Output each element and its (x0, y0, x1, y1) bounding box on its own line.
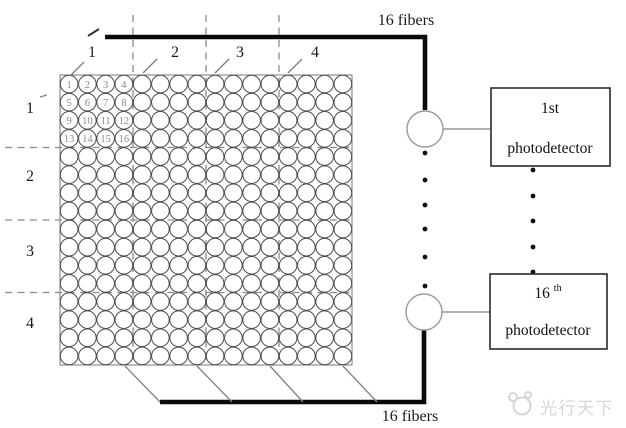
fiber-circle (243, 93, 261, 111)
fiber-circle (60, 184, 78, 202)
fiber-circle (225, 112, 243, 130)
fiber-circle (60, 166, 78, 184)
fiber-circle (225, 93, 243, 111)
fiber-circle (97, 184, 115, 202)
fiber-circle (152, 311, 170, 329)
fiber-circle (316, 293, 334, 311)
fiber-circle (316, 275, 334, 293)
fiber-circle (334, 238, 352, 256)
photodetector-1-ordinal-text: 1st (541, 100, 560, 117)
leader-tick (215, 59, 229, 73)
fiber-circle (188, 130, 206, 148)
fiber-circle (97, 166, 115, 184)
fiber-circle (261, 275, 279, 293)
fiber-circle (243, 257, 261, 275)
ellipsis-dots (423, 151, 536, 289)
fiber-circle (133, 130, 151, 148)
fiber-circle (152, 112, 170, 130)
fiber-circle (261, 220, 279, 238)
fiber-circle (225, 238, 243, 256)
fiber-circle (225, 329, 243, 347)
fiber-number: 13 (64, 134, 75, 145)
fiber-circle (79, 311, 97, 329)
fiber-circle (316, 93, 334, 111)
fiber-circle (243, 329, 261, 347)
fiber-circle (279, 112, 297, 130)
fiber-circle (115, 238, 133, 256)
fiber-circle (298, 130, 316, 148)
fan-out-line (270, 366, 303, 402)
fiber-circle (206, 75, 224, 93)
leader-tick (143, 59, 157, 73)
fiber-circle (170, 184, 188, 202)
fiber-circle (79, 238, 97, 256)
ellipsis-dot (531, 168, 536, 173)
fiber-circle (225, 347, 243, 365)
fiber-circle (170, 347, 188, 365)
fiber-circle (206, 184, 224, 202)
fiber-number: 15 (100, 134, 111, 145)
fiber-circle (188, 293, 206, 311)
fiber-circle (298, 257, 316, 275)
fiber-circle (279, 184, 297, 202)
fiber-circle (206, 293, 224, 311)
fiber-circle (316, 220, 334, 238)
fiber-circle (316, 329, 334, 347)
fiber-circle (243, 130, 261, 148)
fiber-circle (152, 184, 170, 202)
fiber-circle (334, 148, 352, 166)
watermark-logo-icon (509, 392, 531, 415)
top-fibers-label: 16 fibers (378, 12, 434, 29)
fiber-circle (60, 257, 78, 275)
fiber-circle (60, 347, 78, 365)
fiber-number: 16 (119, 134, 130, 145)
fiber-circle (133, 75, 151, 93)
fiber-circle (298, 275, 316, 293)
fiber-circle (225, 293, 243, 311)
fiber-circle (206, 93, 224, 111)
fiber-circle (261, 257, 279, 275)
fiber-circle (79, 184, 97, 202)
fiber-circle (261, 112, 279, 130)
fiber-circle (316, 166, 334, 184)
fiber-circle (152, 220, 170, 238)
fiber-circle (279, 130, 297, 148)
fiber-circle (243, 275, 261, 293)
fiber-circle (79, 257, 97, 275)
fiber-circle (243, 148, 261, 166)
fiber-circle (279, 202, 297, 220)
fiber-circle (298, 184, 316, 202)
fiber-circle (243, 184, 261, 202)
leader-tick (70, 62, 84, 76)
fiber-circle (152, 238, 170, 256)
fiber-circle (225, 184, 243, 202)
fiber-circle (188, 311, 206, 329)
fiber-circle (225, 220, 243, 238)
fiber-circle (133, 148, 151, 166)
fiber-circle (334, 93, 352, 111)
fiber-circle (334, 220, 352, 238)
fiber-circle (115, 202, 133, 220)
fiber-circle (261, 93, 279, 111)
fiber-circle (243, 202, 261, 220)
fiber-circle (188, 112, 206, 130)
fiber-circle (279, 347, 297, 365)
fiber-circle (170, 275, 188, 293)
fiber-circle (188, 329, 206, 347)
fiber-circle (115, 166, 133, 184)
fiber-circle (206, 275, 224, 293)
fiber-circle (152, 347, 170, 365)
fiber-circle (206, 220, 224, 238)
fiber-circle (316, 347, 334, 365)
fiber-circle (188, 75, 206, 93)
fiber-circle (261, 202, 279, 220)
fiber-circle (279, 166, 297, 184)
diagram-canvas: 12345678910111213141516 16 fibers 16 fib… (0, 0, 626, 428)
fiber-circle (316, 148, 334, 166)
ellipsis-dot (531, 219, 536, 224)
fiber-circle (225, 257, 243, 275)
fiber-circle (133, 238, 151, 256)
fiber-circle (298, 148, 316, 166)
fiber-number: 6 (85, 98, 90, 109)
fiber-array-grid: 12345678910111213141516 (5, 15, 352, 365)
fiber-circle (97, 238, 115, 256)
fiber-circle (97, 202, 115, 220)
fiber-circle (261, 166, 279, 184)
fiber-circle (261, 293, 279, 311)
fiber-circle (261, 184, 279, 202)
fiber-circle (152, 166, 170, 184)
fiber-circle (316, 112, 334, 130)
fiber-circle (97, 257, 115, 275)
fiber-circle (79, 166, 97, 184)
fiber-circle (279, 93, 297, 111)
fiber-circle (170, 166, 188, 184)
fiber-circle (97, 347, 115, 365)
fiber-circle (79, 202, 97, 220)
fiber-circle (60, 238, 78, 256)
fiber-circle (206, 257, 224, 275)
fan-out-line (343, 366, 377, 402)
fiber-number: 1 (67, 80, 72, 91)
fiber-circle (334, 75, 352, 93)
fiber-circle (97, 293, 115, 311)
ellipsis-dot (423, 227, 428, 232)
fiber-circle (316, 75, 334, 93)
leader-tick (288, 59, 302, 73)
fiber-circle (152, 257, 170, 275)
fiber-circle (298, 220, 316, 238)
fiber-circle (206, 238, 224, 256)
fiber-circle (334, 184, 352, 202)
fiber-circle (334, 202, 352, 220)
fiber-circle (152, 275, 170, 293)
fiber-circle (334, 293, 352, 311)
fiber-circle (133, 257, 151, 275)
fiber-circle (279, 148, 297, 166)
fiber-circle (152, 293, 170, 311)
fiber-number: 2 (85, 80, 90, 91)
fiber-circle (316, 130, 334, 148)
fiber-circle (115, 184, 133, 202)
fiber-circle (243, 311, 261, 329)
fiber-circle (334, 166, 352, 184)
watermark: 光行天下 (509, 392, 614, 418)
fiber-circle (188, 257, 206, 275)
fiber-circle (133, 293, 151, 311)
column-label-4: 4 (311, 44, 319, 61)
photodetector-1-label: photodetector (507, 140, 593, 157)
fiber-circle (115, 347, 133, 365)
fiber-circle (152, 75, 170, 93)
fiber-circle (243, 293, 261, 311)
fiber-circle (279, 329, 297, 347)
fiber-number: 9 (67, 116, 72, 127)
fiber-circle (243, 112, 261, 130)
fiber-circle (79, 275, 97, 293)
fan-out-line (125, 366, 160, 402)
fiber-circle (97, 329, 115, 347)
ellipsis-dot (423, 203, 428, 208)
fiber-combiner-circle-2 (406, 294, 442, 330)
fiber-circle (243, 220, 261, 238)
fiber-circle (298, 293, 316, 311)
fiber-circle (334, 257, 352, 275)
fiber-circle (79, 148, 97, 166)
fiber-circle (133, 112, 151, 130)
fiber-circle (60, 202, 78, 220)
fiber-circle (206, 202, 224, 220)
fiber-circle (316, 238, 334, 256)
fiber-circle (261, 130, 279, 148)
fiber-circle (79, 347, 97, 365)
fiber-circle (225, 148, 243, 166)
fiber-circle (60, 220, 78, 238)
fiber-circle (298, 202, 316, 220)
fiber-number: 14 (82, 134, 93, 145)
fiber-circle (334, 347, 352, 365)
ellipsis-dot (531, 194, 536, 199)
leader-tick (40, 95, 47, 97)
fiber-circle (279, 275, 297, 293)
ellipsis-dot (423, 284, 428, 289)
fiber-circle (334, 311, 352, 329)
fiber-circle (152, 202, 170, 220)
fiber-circle (133, 166, 151, 184)
fiber-circle (206, 166, 224, 184)
fiber-circle (279, 220, 297, 238)
fiber-circle (133, 93, 151, 111)
fiber-circle (79, 329, 97, 347)
row-label-1: 1 (26, 100, 34, 117)
photodetector-2-label: photodetector (505, 322, 591, 339)
fiber-circle (298, 347, 316, 365)
fiber-circle (298, 93, 316, 111)
column-label-1: 1 (88, 44, 96, 61)
fiber-circle (97, 220, 115, 238)
fiber-circle (170, 112, 188, 130)
fiber-circle (170, 130, 188, 148)
fiber-circle (115, 220, 133, 238)
fiber-circle (60, 311, 78, 329)
fiber-circle (225, 311, 243, 329)
fiber-circle (298, 311, 316, 329)
column-label-2: 2 (171, 44, 179, 61)
fiber-circle (225, 275, 243, 293)
fiber-circle (334, 275, 352, 293)
fiber-number: 11 (101, 116, 111, 127)
fiber-circle (298, 75, 316, 93)
fiber-number: 7 (103, 98, 108, 109)
fiber-circle (170, 238, 188, 256)
fiber-circle (316, 311, 334, 329)
fiber-circle (298, 238, 316, 256)
fiber-circle (225, 75, 243, 93)
fiber-circle (115, 293, 133, 311)
fiber-circle (279, 257, 297, 275)
fiber-circle (170, 220, 188, 238)
fiber-circle (97, 311, 115, 329)
fiber-circle (60, 293, 78, 311)
fiber-circle (60, 329, 78, 347)
fiber-circle (206, 311, 224, 329)
fiber-circle (188, 93, 206, 111)
fan-out-lines (125, 366, 377, 402)
fiber-number: 10 (82, 116, 93, 127)
fiber-circle (170, 257, 188, 275)
fiber-circle (115, 311, 133, 329)
photodetector-2-ordinal-suffix: th (554, 283, 562, 294)
fiber-number: 12 (119, 116, 130, 127)
row-label-2: 2 (26, 168, 34, 185)
photodetector-2-ordinal-text: 16 (534, 285, 550, 302)
fiber-number: 8 (121, 98, 126, 109)
fiber-circle (170, 93, 188, 111)
fiber-circle (79, 220, 97, 238)
fiber-circle (133, 275, 151, 293)
fiber-circle (133, 220, 151, 238)
fiber-circle (261, 329, 279, 347)
fiber-circle (60, 148, 78, 166)
fiber-circle (170, 75, 188, 93)
fiber-circle (133, 202, 151, 220)
fiber-circle (170, 202, 188, 220)
fiber-circle (152, 93, 170, 111)
fiber-circle (188, 184, 206, 202)
fiber-circle (115, 257, 133, 275)
fiber-circle (133, 347, 151, 365)
fiber-circle (115, 275, 133, 293)
fiber-circle (133, 311, 151, 329)
fiber-circle (279, 311, 297, 329)
ellipsis-dot (423, 151, 428, 156)
fan-out-line (197, 366, 232, 402)
fiber-circle (298, 112, 316, 130)
fiber-circle (261, 347, 279, 365)
fiber-circle (206, 347, 224, 365)
watermark-text: 光行天下 (540, 399, 614, 418)
fiber-number: 3 (103, 80, 108, 91)
fiber-circle (279, 238, 297, 256)
fiber-circle (133, 329, 151, 347)
fiber-circle (152, 148, 170, 166)
fiber-circle (170, 293, 188, 311)
fiber-circle (152, 130, 170, 148)
fiber-array-diagram: 12345678910111213141516 16 fibers 16 fib… (0, 0, 626, 428)
ellipsis-dot (531, 245, 536, 250)
row-label-4: 4 (26, 315, 34, 332)
fiber-circle (334, 112, 352, 130)
fiber-circle (206, 329, 224, 347)
fiber-circle (188, 148, 206, 166)
fiber-circle (188, 238, 206, 256)
fiber-circle (334, 130, 352, 148)
fiber-circle (243, 166, 261, 184)
fiber-circle (261, 148, 279, 166)
fiber-circle (188, 202, 206, 220)
fiber-circle (206, 112, 224, 130)
column-label-3: 3 (236, 44, 244, 61)
row-label-3: 3 (26, 243, 34, 260)
ellipsis-dot (423, 255, 428, 260)
ellipsis-dot (423, 178, 428, 183)
fiber-number: 4 (121, 80, 127, 91)
bottom-fibers-label: 16 fibers (382, 408, 438, 425)
bundle-line-start-tick (88, 29, 99, 36)
fiber-circle (133, 184, 151, 202)
fiber-circle (225, 202, 243, 220)
fiber-circle (225, 130, 243, 148)
fiber-circle (316, 184, 334, 202)
fiber-circle (97, 148, 115, 166)
fiber-number: 5 (67, 98, 72, 109)
fiber-circle (188, 220, 206, 238)
fiber-circle (170, 148, 188, 166)
fiber-circle (206, 148, 224, 166)
fiber-circle (243, 75, 261, 93)
fiber-circle (188, 166, 206, 184)
photodetector-1-ordinal: 1st (541, 100, 560, 117)
fiber-circle (170, 329, 188, 347)
fiber-circle (79, 293, 97, 311)
fiber-circle (225, 166, 243, 184)
fiber-combiner-circle-1 (407, 111, 443, 147)
fiber-circle (298, 166, 316, 184)
fiber-circle (152, 329, 170, 347)
fiber-circle (115, 329, 133, 347)
fiber-circle (188, 347, 206, 365)
fiber-circle (243, 238, 261, 256)
fiber-circle (243, 347, 261, 365)
fiber-circle (261, 238, 279, 256)
fiber-circle (298, 329, 316, 347)
fiber-circle (261, 311, 279, 329)
fiber-circle (206, 130, 224, 148)
fiber-circle (115, 148, 133, 166)
fiber-circle (279, 75, 297, 93)
fiber-circle (279, 293, 297, 311)
fiber-circle (334, 329, 352, 347)
fiber-circle (316, 202, 334, 220)
fiber-circle (188, 275, 206, 293)
fiber-circle (316, 257, 334, 275)
fiber-circle (97, 275, 115, 293)
fiber-circle (261, 75, 279, 93)
